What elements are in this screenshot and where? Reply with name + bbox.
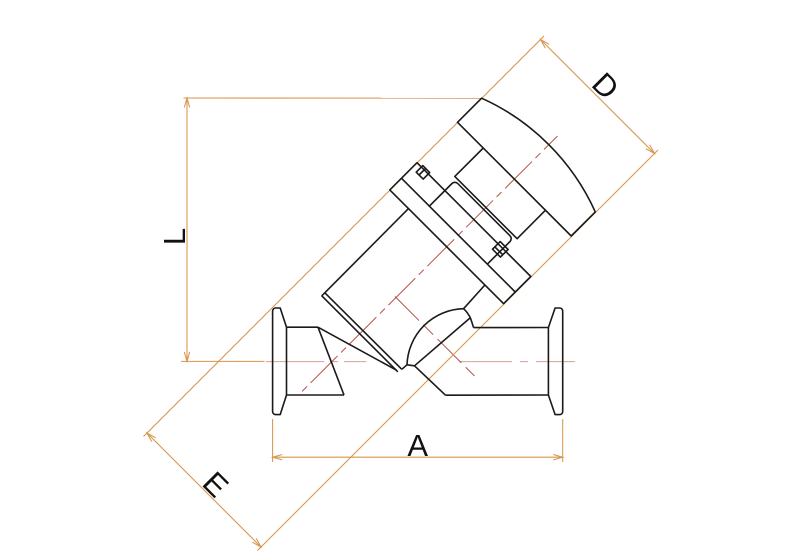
svg-text:D: D — [585, 66, 626, 107]
svg-text:L: L — [157, 228, 192, 245]
svg-text:E: E — [196, 465, 235, 504]
svg-text:A: A — [407, 428, 428, 463]
